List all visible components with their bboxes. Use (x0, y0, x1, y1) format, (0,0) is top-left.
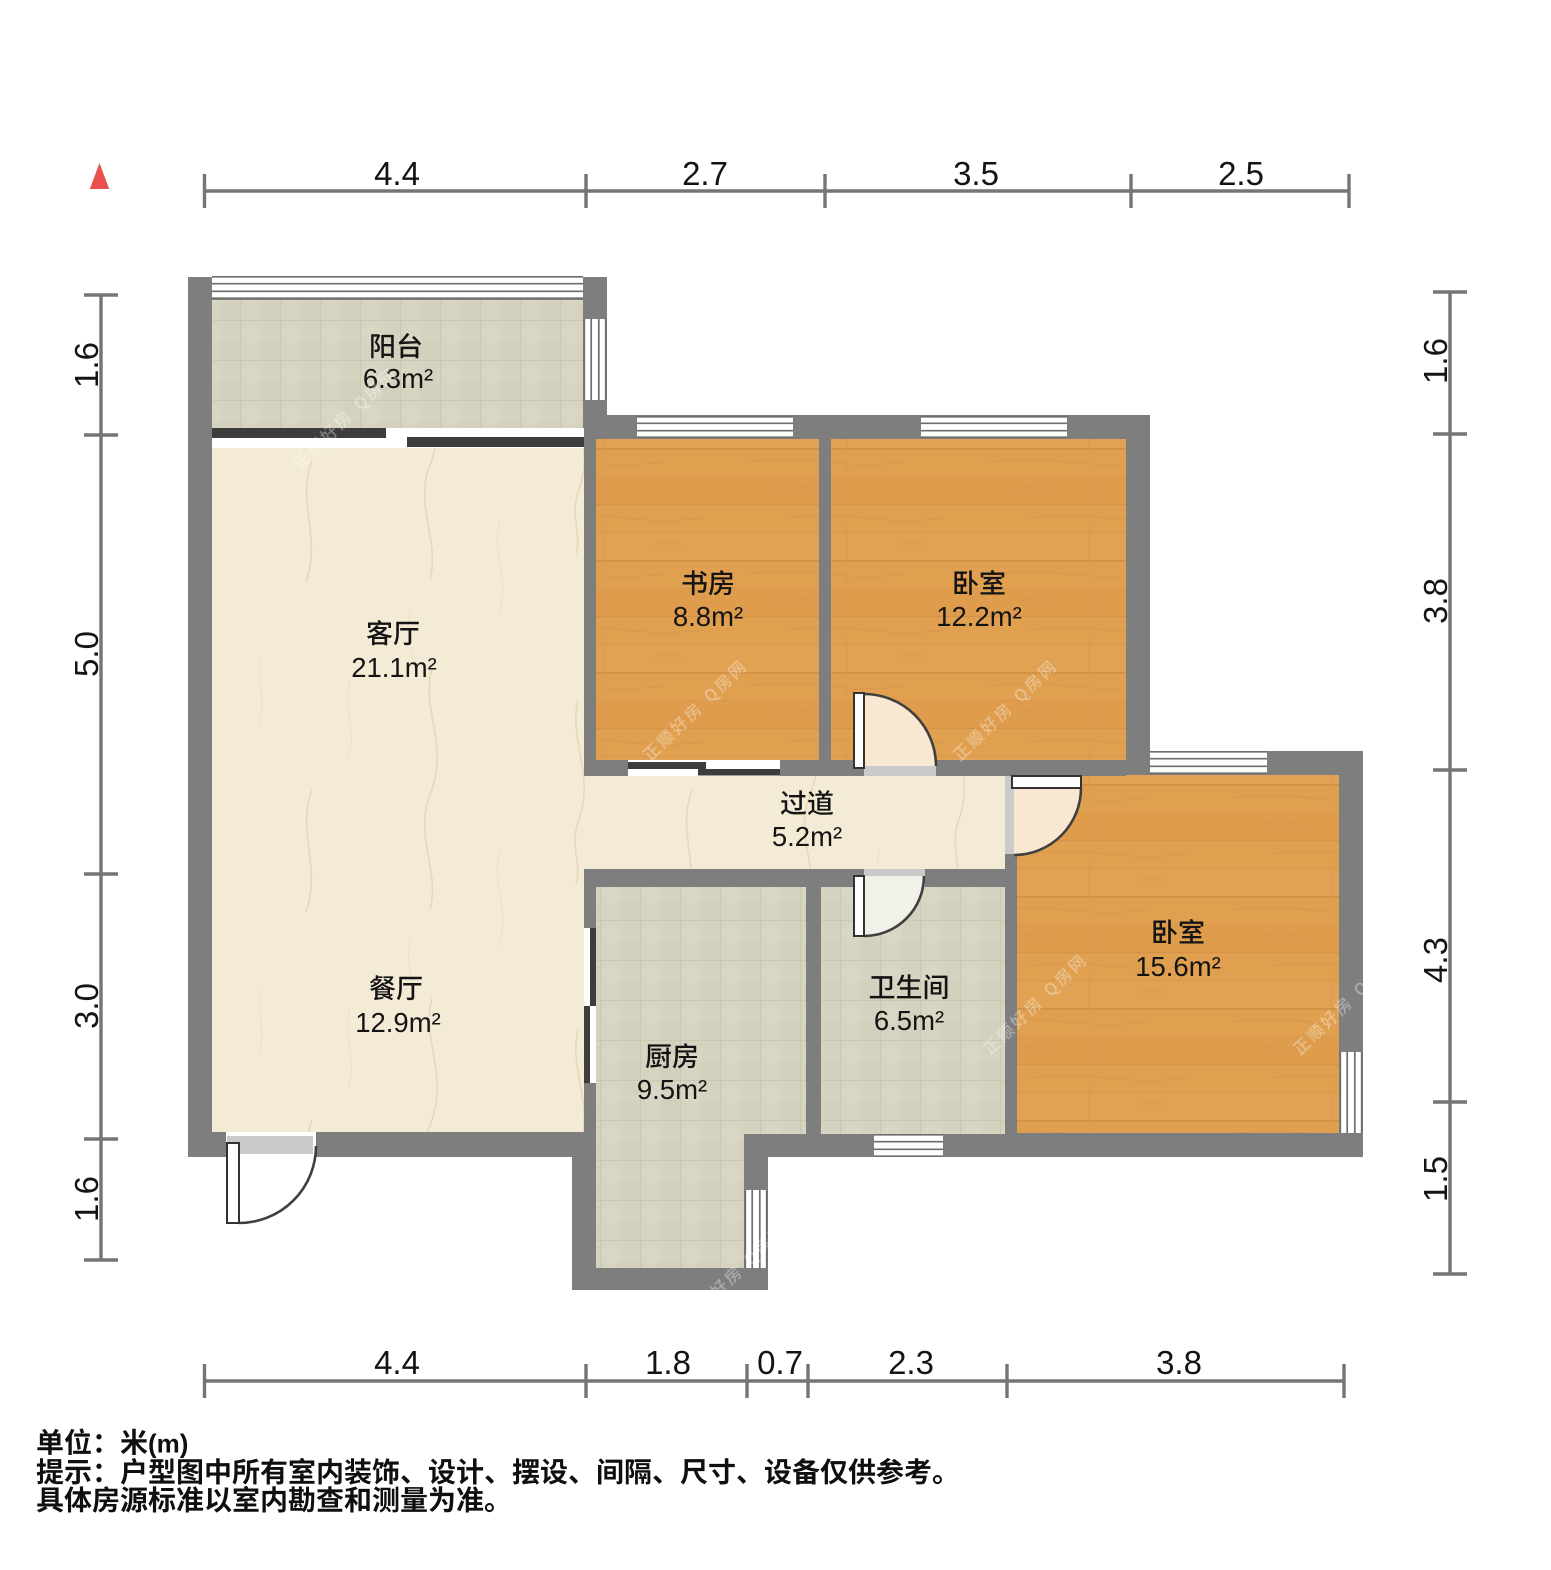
svg-text:3.8: 3.8 (1156, 1344, 1202, 1381)
svg-text:12.2m²: 12.2m² (936, 601, 1022, 632)
svg-text:1.6: 1.6 (68, 342, 105, 388)
svg-text:2.5: 2.5 (1218, 155, 1264, 192)
svg-text:1.6: 1.6 (68, 1176, 105, 1222)
svg-text:5.0: 5.0 (68, 631, 105, 677)
svg-text:3.5: 3.5 (953, 155, 999, 192)
svg-text:0.7: 0.7 (757, 1344, 803, 1381)
svg-text:4.4: 4.4 (374, 155, 420, 192)
svg-text:3.0: 3.0 (68, 983, 105, 1029)
svg-text:2.7: 2.7 (682, 155, 728, 192)
svg-text:3.8: 3.8 (1417, 578, 1454, 624)
svg-text:4.3: 4.3 (1417, 937, 1454, 983)
svg-text:6.5m²: 6.5m² (874, 1005, 944, 1036)
svg-text:21.1m²: 21.1m² (351, 652, 437, 683)
svg-text:9.5m²: 9.5m² (637, 1074, 707, 1105)
svg-text:1.5: 1.5 (1417, 1156, 1454, 1202)
svg-text:1.8: 1.8 (645, 1344, 691, 1381)
svg-text:2.3: 2.3 (888, 1344, 934, 1381)
svg-text:15.6m²: 15.6m² (1135, 951, 1221, 982)
svg-text:5.2m²: 5.2m² (772, 821, 842, 852)
svg-text:(m): (m) (148, 1429, 188, 1459)
svg-text:12.9m²: 12.9m² (355, 1007, 441, 1038)
svg-text:4.4: 4.4 (374, 1344, 420, 1381)
svg-text:8.8m²: 8.8m² (673, 601, 743, 632)
svg-text:1.6: 1.6 (1417, 338, 1454, 384)
